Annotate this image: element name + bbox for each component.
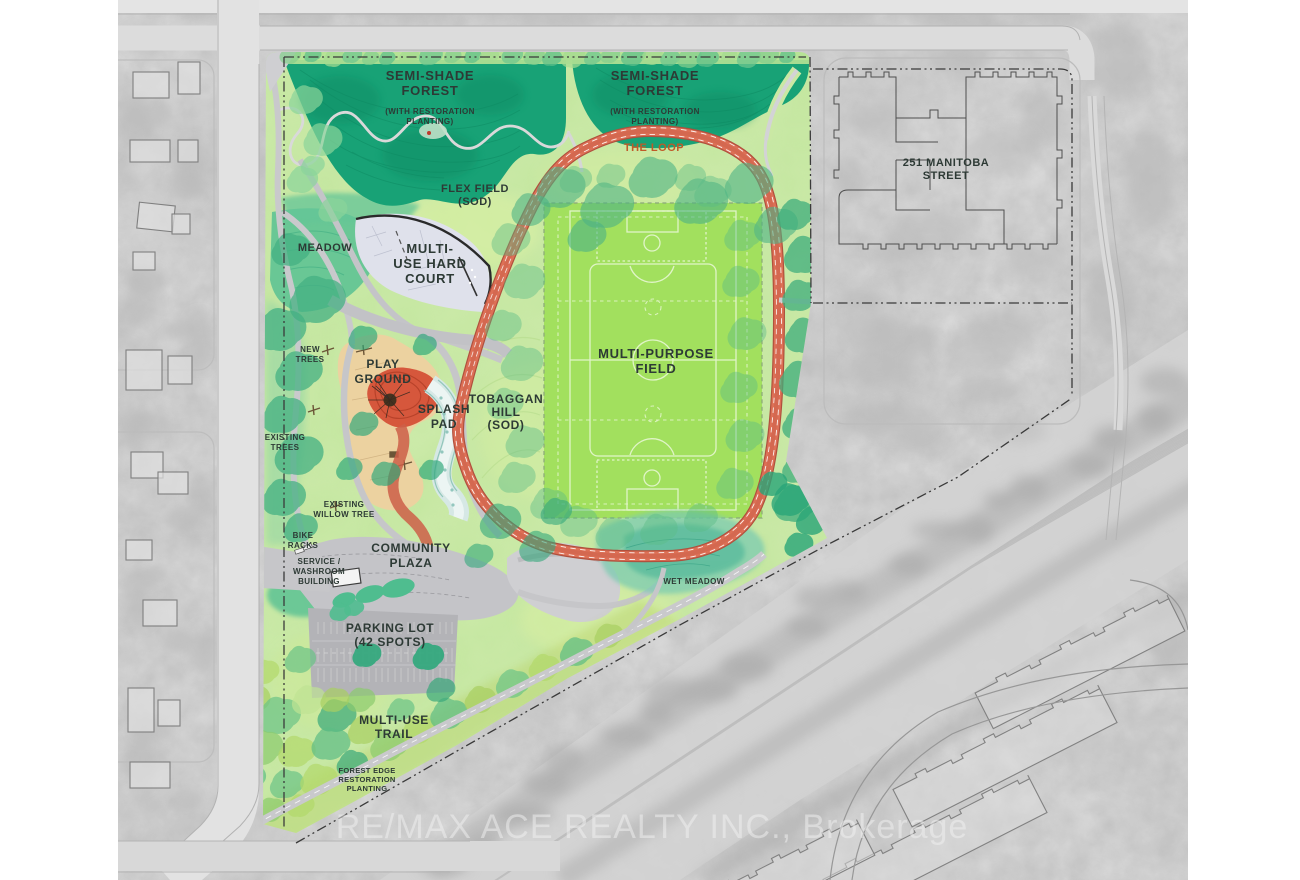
svg-text:FOREST EDGE: FOREST EDGE <box>338 766 395 775</box>
svg-text:RESTORATION: RESTORATION <box>338 775 395 784</box>
svg-text:FLEX FIELD: FLEX FIELD <box>441 183 509 195</box>
svg-text:SEMI-SHADE: SEMI-SHADE <box>611 68 700 83</box>
svg-text:STREET: STREET <box>923 170 969 182</box>
svg-text:TOBAGGAN: TOBAGGAN <box>469 392 544 406</box>
svg-text:TREES: TREES <box>296 355 325 364</box>
svg-text:COMMUNITY: COMMUNITY <box>371 541 450 555</box>
svg-text:FOREST: FOREST <box>402 83 459 98</box>
svg-text:WILLOW TREE: WILLOW TREE <box>313 510 375 519</box>
svg-text:EXISTING: EXISTING <box>265 433 306 442</box>
svg-text:BUILDING: BUILDING <box>298 577 340 586</box>
svg-text:RE/MAX ACE REALTY INC., Broker: RE/MAX ACE REALTY INC., Brokerage <box>336 808 969 846</box>
svg-text:HILL: HILL <box>491 405 520 419</box>
svg-text:WET MEADOW: WET MEADOW <box>663 577 724 586</box>
svg-text:BIKE: BIKE <box>293 531 314 540</box>
svg-text:PLAY: PLAY <box>366 357 399 371</box>
svg-text:PLAZA: PLAZA <box>390 556 433 570</box>
svg-text:RACKS: RACKS <box>288 541 319 550</box>
svg-text:MEADOW: MEADOW <box>298 242 352 254</box>
svg-text:PAD: PAD <box>431 417 457 431</box>
svg-text:(SOD): (SOD) <box>458 196 492 208</box>
svg-text:FIELD: FIELD <box>635 361 676 376</box>
svg-text:FOREST: FOREST <box>627 83 684 98</box>
svg-text:EXISTING: EXISTING <box>324 500 365 509</box>
svg-text:251 MANITOBA: 251 MANITOBA <box>903 157 989 169</box>
svg-text:THE LOOP: THE LOOP <box>624 142 684 154</box>
svg-text:NEW: NEW <box>300 345 320 354</box>
svg-text:SERVICE /: SERVICE / <box>297 557 340 566</box>
svg-text:SPLASH: SPLASH <box>418 402 470 416</box>
svg-text:PLANTING): PLANTING) <box>406 117 453 126</box>
svg-text:COURT: COURT <box>405 271 455 286</box>
svg-text:PARKING LOT: PARKING LOT <box>346 621 434 635</box>
svg-text:SEMI-SHADE: SEMI-SHADE <box>386 68 475 83</box>
svg-text:MULTI-: MULTI- <box>406 241 453 256</box>
svg-text:WASHROOM: WASHROOM <box>293 567 345 576</box>
svg-text:TREES: TREES <box>271 443 300 452</box>
svg-text:(WITH RESTORATION: (WITH RESTORATION <box>610 107 700 116</box>
svg-text:(WITH RESTORATION: (WITH RESTORATION <box>385 107 475 116</box>
svg-text:USE HARD: USE HARD <box>393 256 467 271</box>
svg-text:GROUND: GROUND <box>355 372 412 386</box>
svg-text:MULTI-PURPOSE: MULTI-PURPOSE <box>598 346 714 361</box>
svg-text:PLANTING): PLANTING) <box>631 117 678 126</box>
svg-text:PLANTING: PLANTING <box>347 784 388 793</box>
svg-text:(42 SPOTS): (42 SPOTS) <box>354 635 425 649</box>
svg-text:TRAIL: TRAIL <box>375 727 413 741</box>
svg-text:(SOD): (SOD) <box>488 418 525 432</box>
svg-text:MULTI-USE: MULTI-USE <box>359 713 429 727</box>
